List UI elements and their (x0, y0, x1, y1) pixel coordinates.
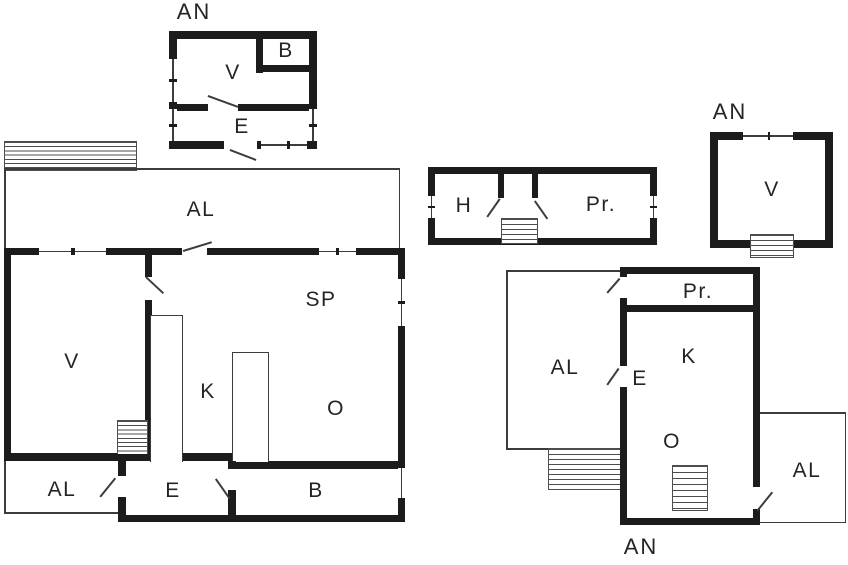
room-label-al-right: AL (793, 459, 822, 483)
annex-left-outline-left (506, 270, 508, 450)
wall-top (620, 267, 760, 274)
door-swing (606, 278, 620, 293)
room-label-e: E (632, 367, 648, 391)
door-opening (620, 366, 627, 387)
annex-left-outline-bottom (506, 448, 549, 450)
room-label-pr: Pr. (683, 280, 713, 304)
annex-right-outline-top (760, 412, 846, 414)
wall-pr-bottom (627, 305, 753, 312)
door-swing (606, 368, 619, 385)
room-label-o: O (663, 430, 681, 454)
floorplan-sheet: AN V B E (0, 0, 848, 565)
wall-left (620, 267, 627, 525)
floorplan-second-house: Pr. K E AL O AL AN (0, 0, 848, 565)
room-label-k: K (681, 345, 697, 369)
room-label-al-left: AL (551, 356, 580, 380)
plan-title: AN (624, 534, 659, 560)
annex-right-outline-bottom (760, 522, 846, 524)
wall-bottom (620, 518, 760, 525)
door-opening (620, 277, 627, 298)
stairs-hatch (672, 465, 708, 511)
steps-hatch (548, 448, 624, 490)
annex-left-outline-top (506, 270, 622, 272)
annex-right-outline-right (845, 412, 847, 523)
